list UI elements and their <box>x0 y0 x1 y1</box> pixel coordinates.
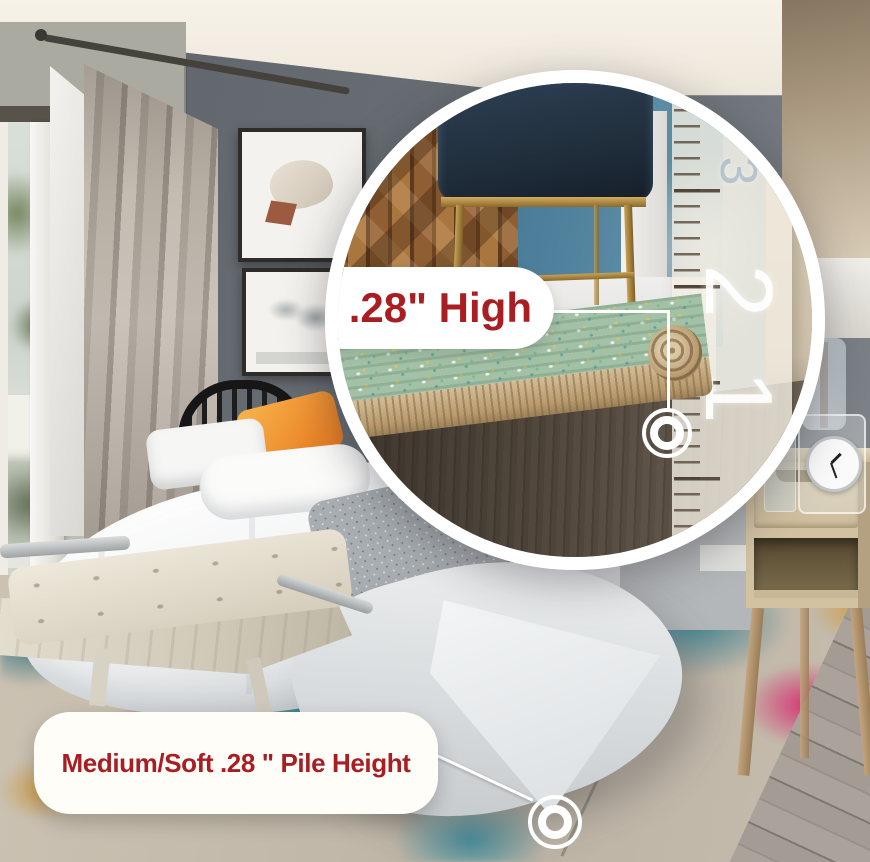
magnified-rug-view: 3 2 1 .28" High <box>338 83 812 557</box>
target-ring-icon <box>650 416 684 450</box>
pile-height-text: Medium/Soft .28 " Pile Height <box>62 748 411 779</box>
pile-height-zoom-callout: .28" High <box>338 267 554 349</box>
art-terracotta-shape <box>265 201 297 226</box>
alarm-clock-face <box>806 436 862 492</box>
zoom-leader-line <box>550 310 670 411</box>
pile-height-zoom-text: .28" High <box>349 284 532 332</box>
magnifier-circle: 3 2 1 .28" High <box>325 70 825 570</box>
bench-gold-leg <box>594 205 599 305</box>
navy-bench-cushion <box>438 83 653 201</box>
target-ring-icon <box>538 805 572 839</box>
ruler-number: 2 <box>690 251 786 331</box>
curtain-rod-finial <box>35 29 47 41</box>
nightstand-shelf-lip <box>754 590 858 598</box>
product-lifestyle-photo: 3 2 1 .28" High Medium/Soft .28 " Pile H… <box>0 0 870 862</box>
nightstand-leg <box>800 608 809 758</box>
pile-height-callout: Medium/Soft .28 " Pile Height <box>34 712 438 814</box>
curtain-leading-edge <box>50 36 86 536</box>
bench-gold-bar <box>441 197 646 207</box>
ruler-number: 3 <box>712 131 764 211</box>
door-frame-jamb <box>0 122 8 642</box>
